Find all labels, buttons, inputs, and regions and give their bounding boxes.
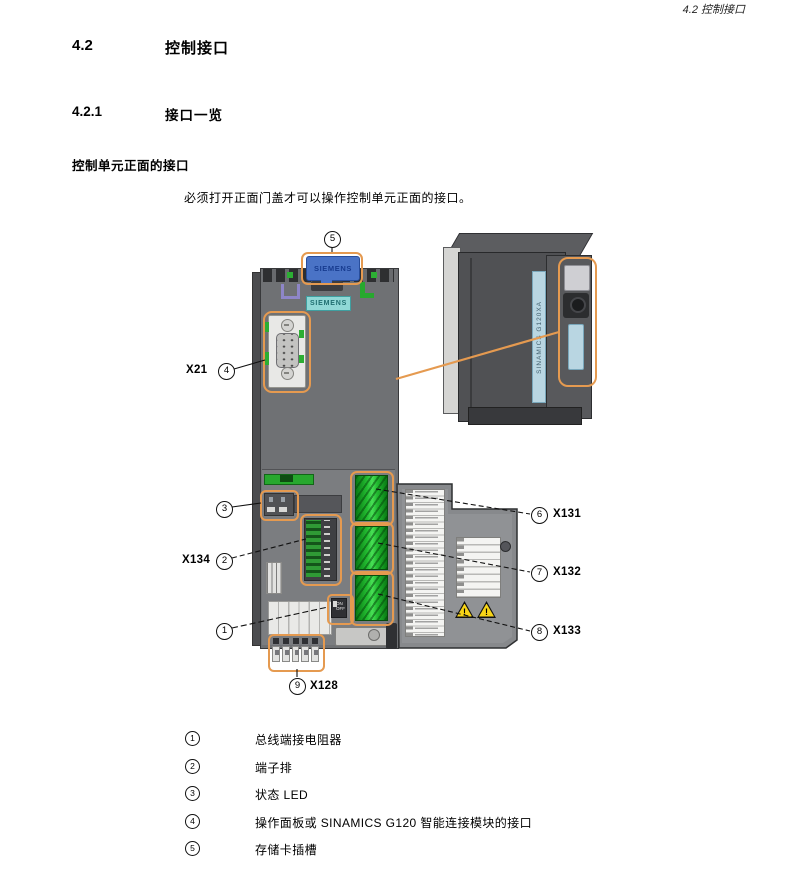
port-label-x133: X133 xyxy=(553,625,581,637)
callout-9: 9 xyxy=(289,678,306,695)
callout-2: 2 xyxy=(216,553,233,570)
callout-3: 3 xyxy=(216,501,233,518)
port-label-x134: X134 xyxy=(182,554,210,566)
callout-4: 4 xyxy=(218,363,235,380)
port-label-x128: X128 xyxy=(310,680,338,692)
callout-leader-lines xyxy=(0,0,794,889)
callout-7: 7 xyxy=(531,565,548,582)
callout-6: 6 xyxy=(531,507,548,524)
port-label-x131: X131 xyxy=(553,508,581,520)
callout-1: 1 xyxy=(216,623,233,640)
port-label-x21: X21 xyxy=(186,364,207,376)
callout-5: 5 xyxy=(324,231,341,248)
manual-page: 4.2 控制接口 4.2 控制接口 4.2.1 接口一览 控制单元正面的接口 必… xyxy=(0,0,794,889)
port-label-x132: X132 xyxy=(553,566,581,578)
callout-8: 8 xyxy=(531,624,548,641)
